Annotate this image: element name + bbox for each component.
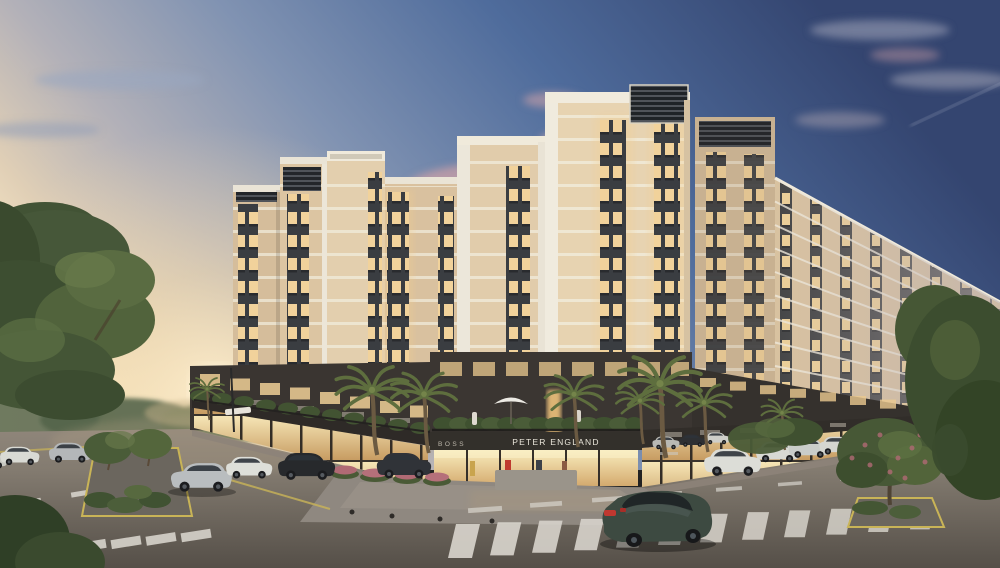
sign-boss: BOSS xyxy=(438,441,466,448)
scene-render: PETER ENGLAND BOSS xyxy=(0,0,1000,568)
tower-6 xyxy=(695,117,775,393)
screenshot-root: PETER ENGLAND BOSS xyxy=(0,0,1000,568)
terrace-figure xyxy=(472,412,477,425)
tower-3 xyxy=(327,151,385,396)
sign-peter-england: PETER ENGLAND xyxy=(512,437,599,447)
planter-bench xyxy=(495,470,577,490)
taillight xyxy=(604,510,616,516)
taillight xyxy=(620,508,626,512)
tower-2 xyxy=(280,157,327,396)
tower-1 xyxy=(233,185,280,396)
sedan-green-driving xyxy=(600,491,716,552)
